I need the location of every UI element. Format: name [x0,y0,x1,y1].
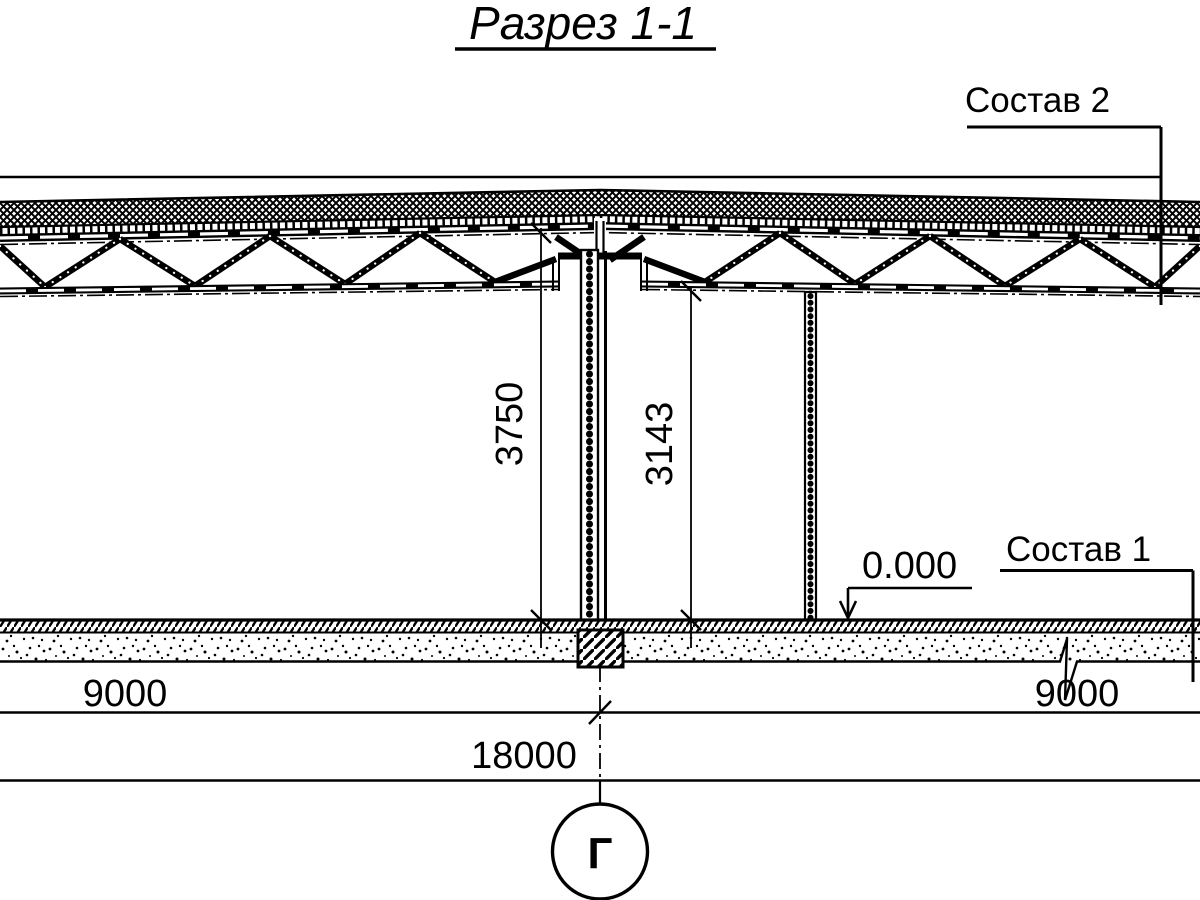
axis-letter: Г [588,829,613,878]
total-span-text: 18000 [471,735,577,777]
title-text: Разрез 1-1 [469,0,697,49]
dimension-3143: 3143 [639,281,701,648]
axis-marker: Г [553,666,648,899]
span-right-text: 9000 [1035,673,1120,715]
section-drawing: Разрез 1-1 [0,0,1200,900]
center-column [581,250,606,621]
floor-composition-text: Состав 1 [1006,530,1151,569]
elevation-text: 0.000 [862,545,957,587]
dim-3750-text: 3750 [489,382,531,467]
roof-composition-text: Состав 2 [965,81,1110,120]
truss-bottom-chord-right [642,284,1200,297]
drawing-sheet: Разрез 1-1 [0,0,1200,900]
truss-right-diagonal-rivets [705,233,1200,287]
foundation-block [578,630,623,667]
truss-left-diagonal-rivets [0,233,495,287]
drawing-title: Разрез 1-1 [455,0,716,49]
dim-3143-text: 3143 [639,402,681,487]
truss-bottom-chord-left [0,284,558,297]
elevation-mark: 0.000 [840,545,972,618]
right-column [805,292,816,621]
span-left-text: 9000 [83,673,168,715]
